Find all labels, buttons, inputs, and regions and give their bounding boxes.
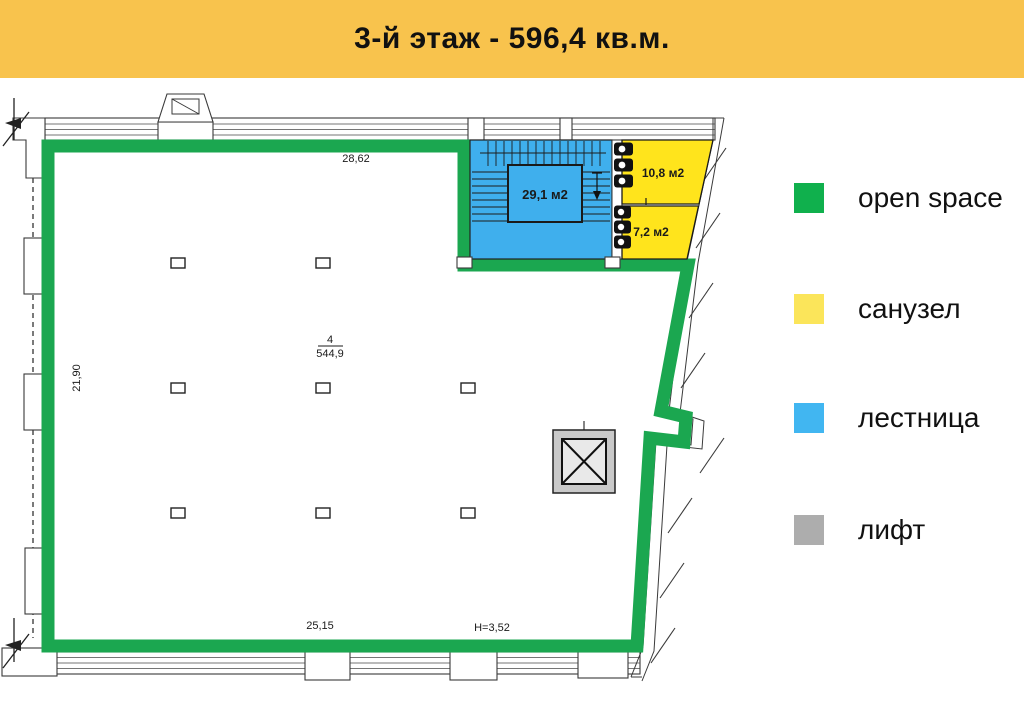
floorplan-svg: 29,1 м2 10,8 м2 7,2 м2	[0, 78, 760, 699]
legend-item-sanuzel: санузел	[780, 293, 961, 325]
legend-item-lift: лифт	[780, 514, 925, 546]
legend-label: лифт	[858, 514, 925, 546]
room-area: 544,9	[316, 348, 344, 360]
title-banner: 3-й этаж - 596,4 кв.м.	[0, 0, 1024, 78]
legend-label: open space	[858, 182, 1003, 214]
legend-label: лестница	[858, 402, 979, 434]
legend-item-open-space: open space	[780, 182, 1003, 214]
room-number: 4	[327, 334, 333, 346]
wc-top-area-label: 10,8 м2	[642, 166, 685, 180]
columns	[171, 258, 475, 518]
legend-label: санузел	[858, 293, 961, 325]
legend-item-lestnitsa: лестница	[780, 402, 979, 434]
floorplan: 29,1 м2 10,8 м2 7,2 м2	[0, 78, 760, 699]
stairs-area-label: 29,1 м2	[522, 187, 568, 202]
dimensions: 28,62 21,90 25,15 Н=3,52 4 544,9	[71, 153, 510, 634]
canopy-bump	[158, 94, 213, 140]
sanuzel-swatch	[794, 294, 824, 324]
room-tag: 4 544,9	[316, 334, 344, 360]
dimension-ceiling-height: Н=3,52	[474, 622, 510, 634]
page-title: 3-й этаж - 596,4 кв.м.	[354, 22, 670, 56]
wc-bottom-area-label: 7,2 м2	[633, 225, 669, 239]
dimension-bottom-width: 25,15	[306, 620, 334, 632]
lift-swatch	[794, 515, 824, 545]
dimension-left-height: 21,90	[71, 364, 83, 392]
legend: open space санузел лестница лифт	[780, 78, 1024, 638]
elevator	[553, 421, 615, 493]
dimension-top-width: 28,62	[342, 153, 370, 165]
lestnitsa-swatch	[794, 403, 824, 433]
open-space-swatch	[794, 183, 824, 213]
stairs-zone: 29,1 м2	[470, 140, 612, 259]
